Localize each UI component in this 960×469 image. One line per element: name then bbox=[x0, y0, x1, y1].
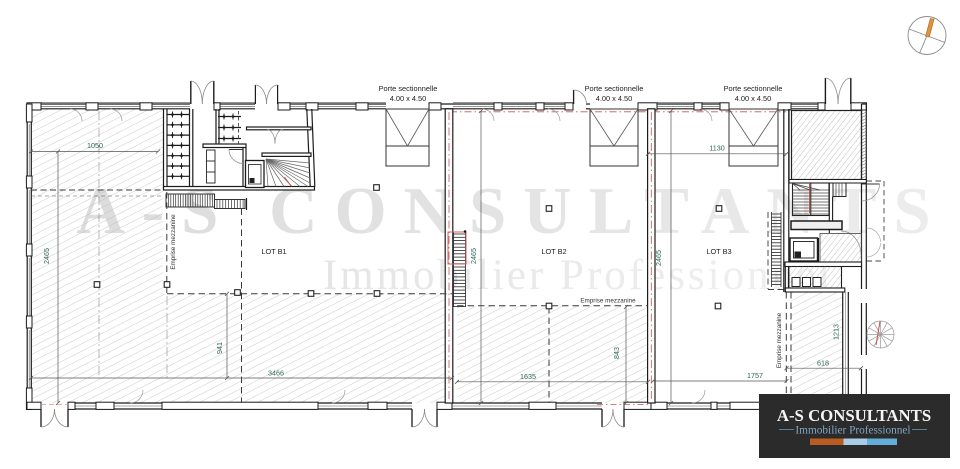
svg-text:4.00 x 4.50: 4.00 x 4.50 bbox=[735, 94, 772, 103]
svg-text:843: 843 bbox=[612, 347, 621, 359]
svg-text:1130: 1130 bbox=[709, 144, 724, 153]
svg-text:Porte sectionnelle: Porte sectionnelle bbox=[379, 84, 438, 93]
svg-text:618: 618 bbox=[817, 359, 829, 368]
svg-text:1213: 1213 bbox=[832, 324, 841, 340]
svg-text:Immobilier Professionnel: Immobilier Professionnel bbox=[323, 252, 833, 299]
svg-text:LOT B3: LOT B3 bbox=[706, 247, 731, 256]
svg-text:941: 941 bbox=[215, 342, 224, 354]
svg-text:4.00 x 4.50: 4.00 x 4.50 bbox=[390, 94, 427, 103]
svg-text:Porte sectionnelle: Porte sectionnelle bbox=[724, 84, 783, 93]
svg-text:LOT B2: LOT B2 bbox=[541, 247, 566, 256]
svg-text:Emprise mezzanine: Emprise mezzanine bbox=[776, 312, 783, 368]
svg-text:1757: 1757 bbox=[747, 371, 763, 380]
svg-text:4.00 x 4.50: 4.00 x 4.50 bbox=[596, 94, 633, 103]
svg-text:Immobilier Professionnel: Immobilier Professionnel bbox=[795, 425, 910, 437]
svg-text:Emprise mezzanine: Emprise mezzanine bbox=[580, 298, 636, 305]
svg-text:2465: 2465 bbox=[42, 248, 51, 264]
svg-text:1635: 1635 bbox=[520, 372, 536, 381]
svg-text:Emprise mezzanine: Emprise mezzanine bbox=[170, 214, 177, 270]
svg-text:A-S CONSULTANTS: A-S CONSULTANTS bbox=[777, 406, 931, 425]
svg-text:1050: 1050 bbox=[87, 141, 103, 150]
svg-text:2465: 2465 bbox=[469, 248, 478, 264]
svg-text:3466: 3466 bbox=[268, 369, 284, 378]
svg-text:Porte sectionnelle: Porte sectionnelle bbox=[585, 84, 644, 93]
svg-text:LOT B1: LOT B1 bbox=[261, 247, 286, 256]
svg-text:2465: 2465 bbox=[654, 250, 663, 266]
